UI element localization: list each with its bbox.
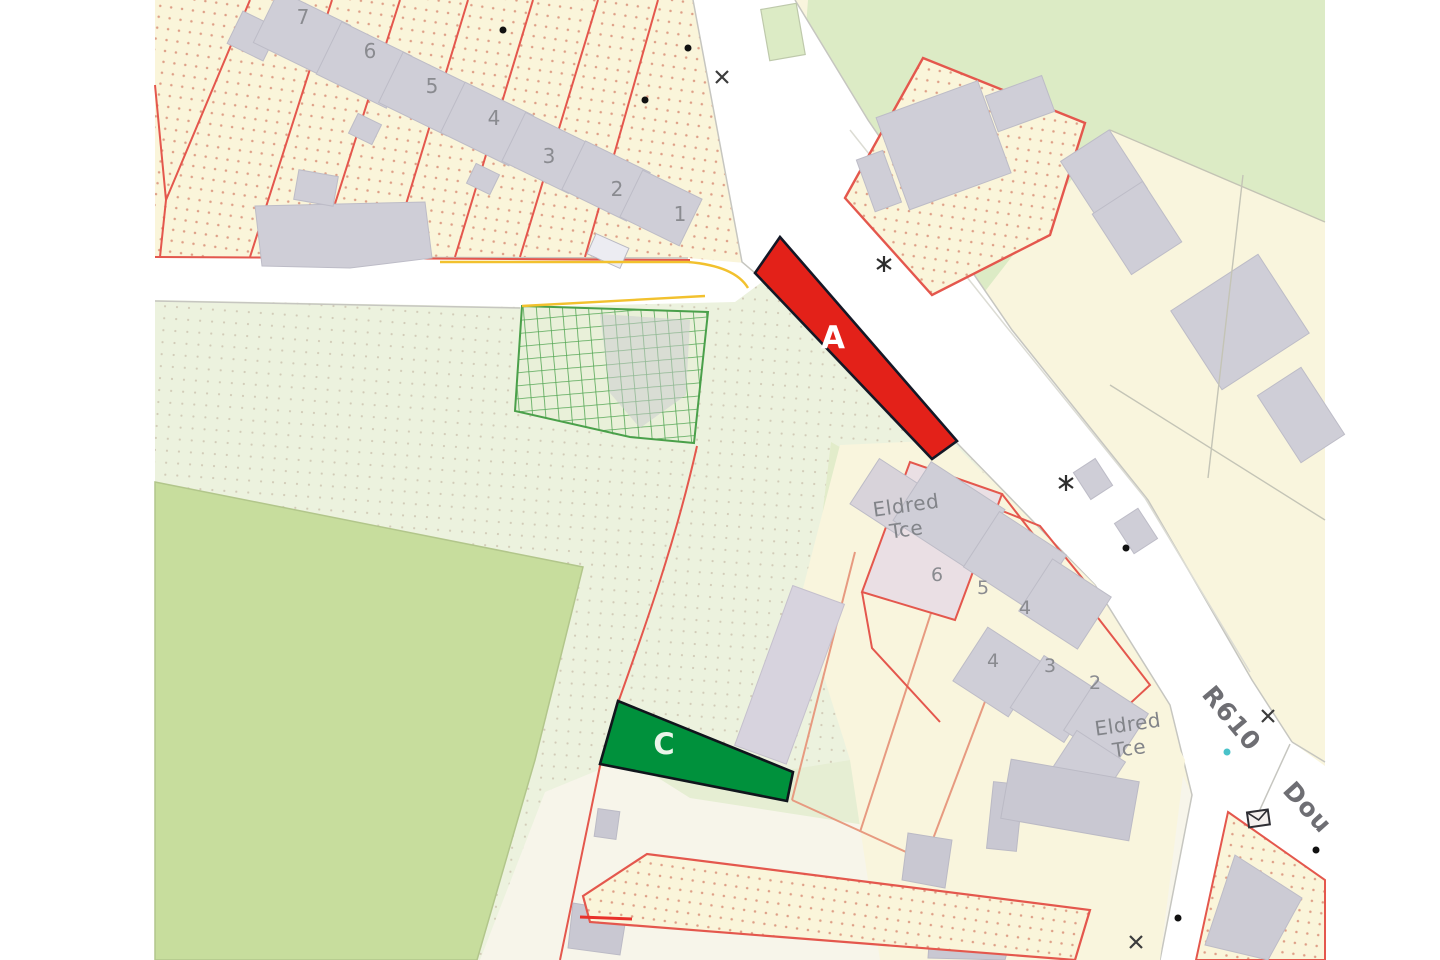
red-segment: [580, 917, 632, 919]
house-number: 7: [297, 5, 310, 29]
terrace-name-line2: Tce: [887, 515, 925, 544]
plot-c-label: C: [653, 727, 674, 761]
house-number: 1: [674, 202, 687, 226]
house-number: 5: [977, 577, 989, 599]
house-number: 4: [987, 650, 999, 672]
house-number: 6: [364, 39, 377, 63]
plot-a-label: A: [821, 320, 845, 356]
house-number: 3: [1044, 655, 1056, 677]
house-number: 6: [931, 564, 943, 586]
house-number: 2: [1089, 672, 1101, 694]
terrace-name-line2: Tce: [1110, 734, 1148, 763]
house-number: 2: [611, 177, 624, 201]
map-screenshot: A C 7 6 5 4 3 2: [0, 0, 1440, 960]
house-number: 4: [1019, 597, 1031, 619]
postbox-icon: [1247, 810, 1270, 828]
house-number: 5: [426, 74, 439, 98]
house-number: 3: [543, 144, 556, 168]
house-number: 4: [488, 106, 501, 130]
map-canvas: A C 7 6 5 4 3 2: [0, 0, 1440, 960]
teal-dot: [1224, 749, 1231, 756]
west-road: [155, 257, 762, 307]
